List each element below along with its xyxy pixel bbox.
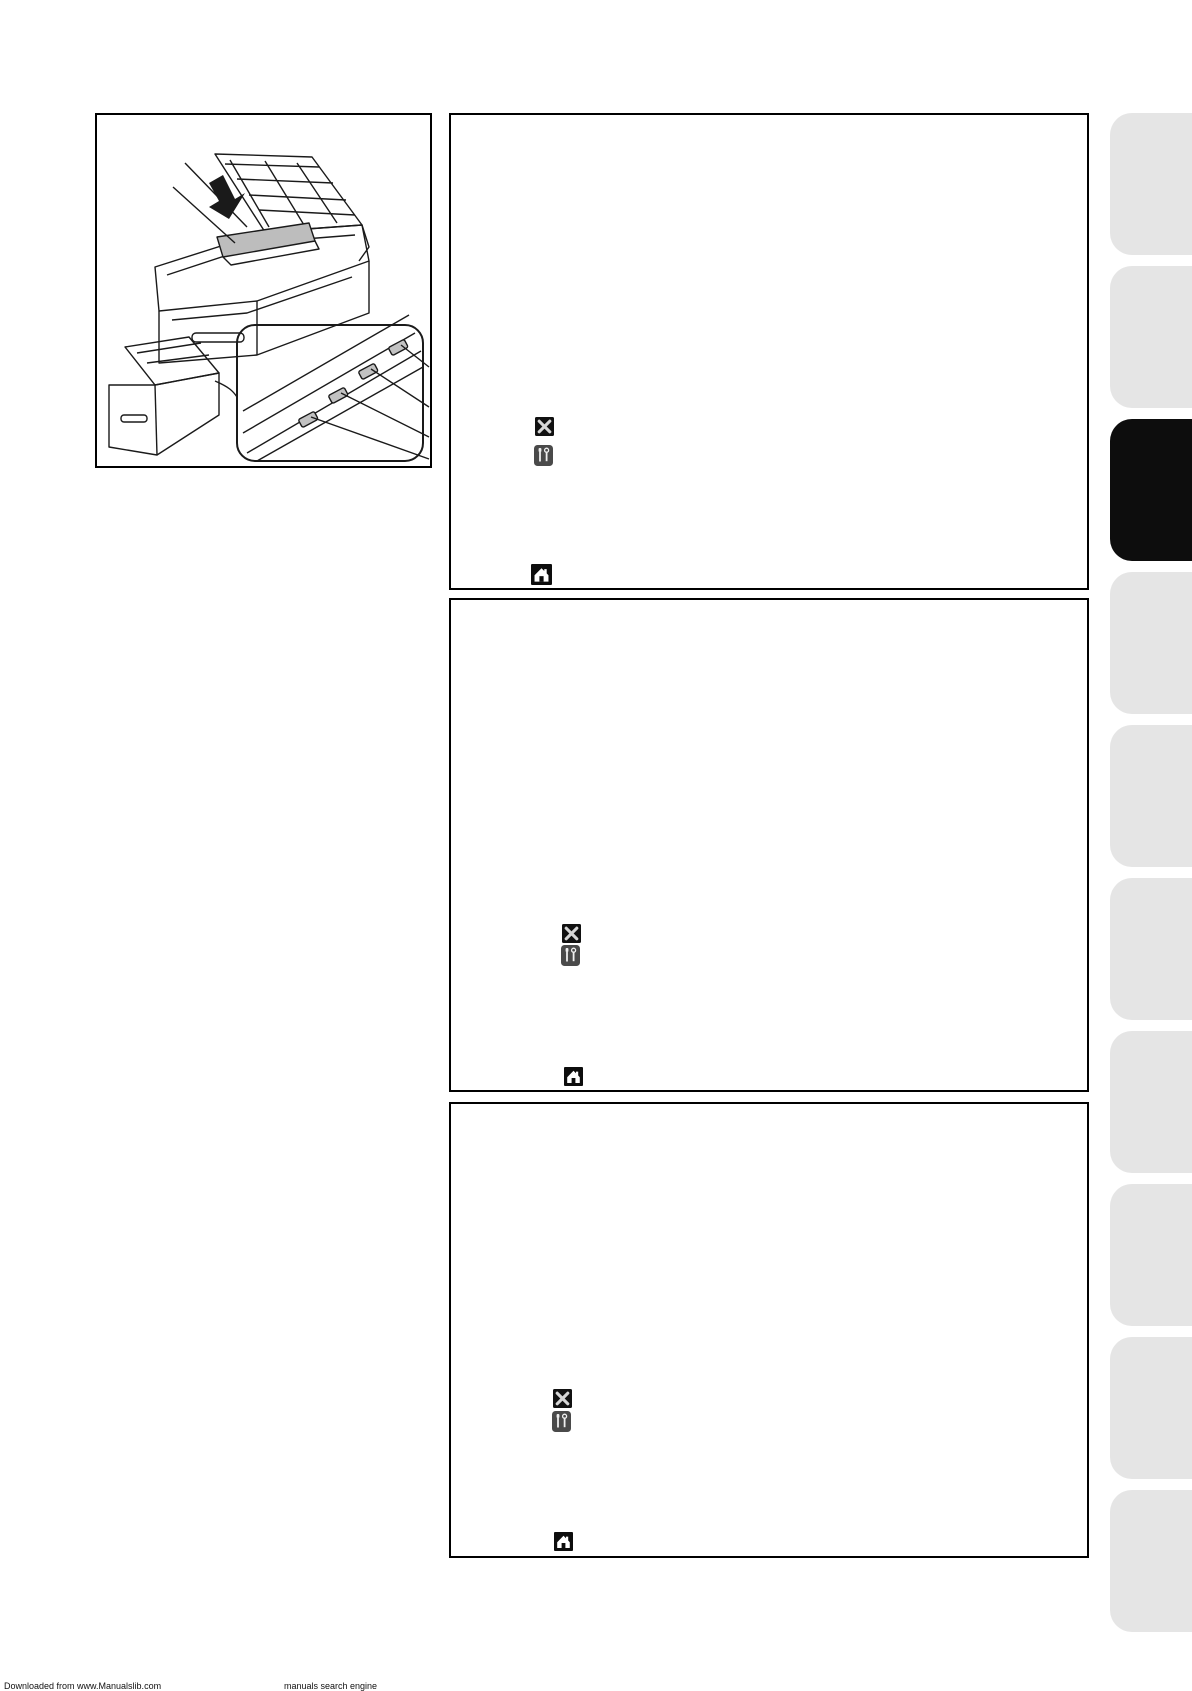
cancel-x-icon [553,1389,572,1408]
toolbox-icon [552,1411,571,1432]
chapter-tab-9[interactable] [1110,1337,1192,1479]
toolbox-icon [561,945,580,966]
printer-line-art [97,115,430,466]
chapter-tab-10[interactable] [1110,1490,1192,1632]
home-icon [564,1067,583,1086]
step-panel-3 [449,1102,1089,1558]
watermark-text-right: manuals search engine [284,1681,377,1691]
step-panel-2 [449,598,1089,1092]
chapter-tab-5[interactable] [1110,725,1192,867]
chapter-tab-2[interactable] [1110,266,1192,408]
step-panel-1 [449,113,1089,590]
chapter-tab-3-active[interactable] [1110,419,1192,561]
cancel-x-icon [562,924,581,943]
chapter-tab-rail [1110,0,1192,1685]
watermark-text-left: Downloaded from www.Manualslib.com [4,1681,161,1691]
chapter-tab-7[interactable] [1110,1031,1192,1173]
chapter-tab-1[interactable] [1110,113,1192,255]
chapter-tab-4[interactable] [1110,572,1192,714]
home-icon [554,1532,573,1551]
watermark-footer: Downloaded from www.Manualslib.com manua… [4,1681,1104,1691]
maintenance-illustration-frame [95,113,432,468]
home-icon [531,564,552,585]
toolbox-icon [534,445,553,466]
chapter-tab-8[interactable] [1110,1184,1192,1326]
chapter-tab-6[interactable] [1110,878,1192,1020]
cancel-x-icon [535,417,554,436]
